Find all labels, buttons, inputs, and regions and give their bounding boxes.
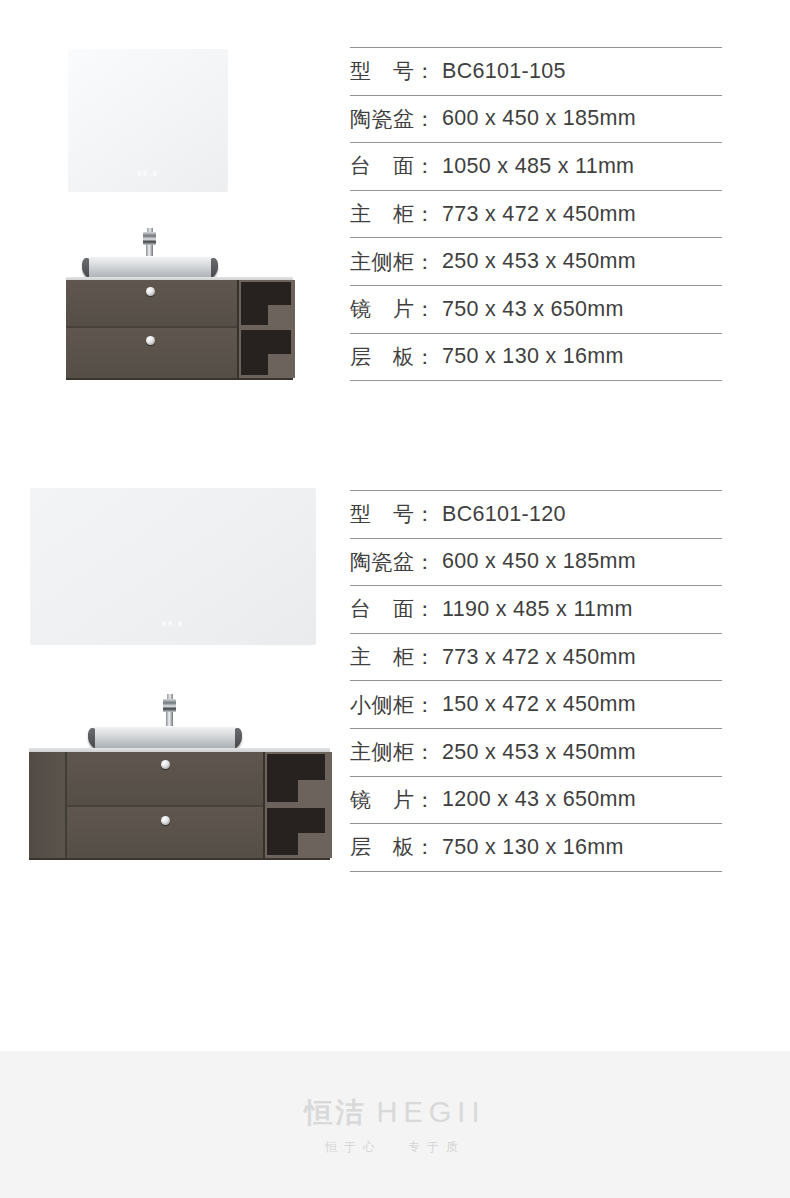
spec-value: BC6101-120 xyxy=(442,502,566,527)
logo-english: HEGII xyxy=(377,1096,486,1129)
brand-tagline: 恒于心 专于质 xyxy=(325,1139,465,1156)
spec-row-side-cabinet: 主侧柜： 250 x 453 x 450mm xyxy=(350,238,722,286)
faucet-head xyxy=(163,699,176,712)
drawer-knob xyxy=(161,816,170,825)
spec-row-basin: 陶瓷盆： 600 x 450 x 185mm xyxy=(350,96,722,144)
spec-value: 1200 x 43 x 650mm xyxy=(442,787,636,812)
shelf-board xyxy=(268,354,291,375)
spec-label: 型 号： xyxy=(350,500,436,528)
drawer-lower xyxy=(67,807,263,858)
spec-row-basin: 陶瓷盆： 600 x 450 x 185mm xyxy=(350,539,722,587)
shelf-board xyxy=(268,305,291,325)
spec-label: 镜 片： xyxy=(350,786,436,814)
spec-label: 层 板： xyxy=(350,343,436,371)
logo-chinese: 恒洁 xyxy=(305,1094,367,1132)
open-shelf-unit xyxy=(237,280,295,378)
small-side-cabinet xyxy=(29,752,67,858)
spec-label: 陶瓷盆： xyxy=(350,105,436,133)
spec-label: 小侧柜： xyxy=(350,691,436,719)
spec-row-countertop: 台 面： 1190 x 485 x 11mm xyxy=(350,586,722,634)
spec-row-shelf: 层 板： 750 x 130 x 16mm xyxy=(350,334,722,382)
spec-label: 层 板： xyxy=(350,833,436,861)
spec-label: 主侧柜： xyxy=(350,738,436,766)
spec-row-small-side-cabinet: 小侧柜： 150 x 472 x 450mm xyxy=(350,681,722,729)
spec-label: 台 面： xyxy=(350,152,436,180)
spec-label: 镜 片： xyxy=(350,295,436,323)
spec-row-shelf: 层 板： 750 x 130 x 16mm xyxy=(350,824,722,872)
faucet-head xyxy=(143,232,156,245)
spec-row-side-cabinet: 主侧柜： 250 x 453 x 450mm xyxy=(350,729,722,777)
spec-value: 773 x 472 x 450mm xyxy=(442,202,636,227)
spec-table-bc6101-105: 型 号： BC6101-105 陶瓷盆： 600 x 450 x 185mm 台… xyxy=(350,47,722,381)
spec-value: 250 x 453 x 450mm xyxy=(442,740,636,765)
spec-label: 主侧柜： xyxy=(350,248,436,276)
shelf-cell-bottom xyxy=(267,808,325,855)
spec-value: 1190 x 485 x 11mm xyxy=(442,597,633,622)
mirror-led-display: · 88:8 · xyxy=(30,620,316,627)
shelf-board xyxy=(298,833,325,855)
spec-row-main-cabinet: 主 柜： 773 x 472 x 450mm xyxy=(350,634,722,682)
spec-row-countertop: 台 面： 1050 x 485 x 11mm xyxy=(350,143,722,191)
spec-row-model: 型 号： BC6101-120 xyxy=(350,491,722,539)
spec-label: 主 柜： xyxy=(350,200,436,228)
spec-table-bc6101-120: 型 号： BC6101-120 陶瓷盆： 600 x 450 x 185mm 台… xyxy=(350,490,722,872)
faucet-body xyxy=(166,712,173,727)
mirror-image-105: · 88:8 · xyxy=(68,49,228,192)
spec-value: 600 x 450 x 185mm xyxy=(442,549,636,574)
spec-label: 陶瓷盆： xyxy=(350,548,436,576)
spec-value: BC6101-105 xyxy=(442,59,566,84)
mirror-led-display: · 88:8 · xyxy=(68,170,228,177)
spec-row-mirror: 镜 片： 1200 x 43 x 650mm xyxy=(350,777,722,825)
spec-value: 150 x 472 x 450mm xyxy=(442,692,636,717)
brand-footer: 恒洁 HEGII 恒于心 专于质 xyxy=(0,1051,790,1198)
shelf-board xyxy=(298,780,325,802)
product-spec-page: · 88:8 · 型 号： BC6101-105 陶瓷 xyxy=(0,0,790,1198)
spec-value: 250 x 453 x 450mm xyxy=(442,249,636,274)
drawer-area xyxy=(66,280,237,378)
spec-value: 750 x 130 x 16mm xyxy=(442,835,624,860)
drawer-area xyxy=(67,752,263,858)
tagline-right: 专于质 xyxy=(408,1139,465,1156)
drawer-knob xyxy=(146,336,155,345)
spec-label: 台 面： xyxy=(350,595,436,623)
spec-value: 773 x 472 x 450mm xyxy=(442,645,636,670)
vanity-cabinet-105 xyxy=(66,277,293,380)
tagline-left: 恒于心 xyxy=(325,1139,382,1156)
spec-row-model: 型 号： BC6101-105 xyxy=(350,48,722,96)
basin-edge-left xyxy=(82,258,89,279)
spec-label: 主 柜： xyxy=(350,643,436,671)
spec-row-mirror: 镜 片： 750 x 43 x 650mm xyxy=(350,286,722,334)
shelf-cell-top xyxy=(267,754,325,802)
spec-value: 750 x 43 x 650mm xyxy=(442,297,624,322)
vanity-cabinet-120 xyxy=(29,748,330,860)
shelf-cell-bottom xyxy=(241,330,291,375)
spec-value: 1050 x 485 x 11mm xyxy=(442,154,634,179)
basin-edge-left xyxy=(88,728,95,749)
hegii-logo: 恒洁 HEGII xyxy=(305,1094,486,1132)
basin-edge-right xyxy=(235,728,242,749)
drawer-knob xyxy=(161,760,170,769)
open-shelf-unit xyxy=(263,752,332,858)
spec-value: 600 x 450 x 185mm xyxy=(442,106,636,131)
spec-row-main-cabinet: 主 柜： 773 x 472 x 450mm xyxy=(350,191,722,239)
spec-label: 型 号： xyxy=(350,57,436,85)
mirror-image-120: · 88:8 · xyxy=(30,488,316,645)
shelf-cell-top xyxy=(241,282,291,325)
drawer-knob xyxy=(146,287,155,296)
spec-value: 750 x 130 x 16mm xyxy=(442,344,624,369)
basin-edge-right xyxy=(211,258,218,279)
